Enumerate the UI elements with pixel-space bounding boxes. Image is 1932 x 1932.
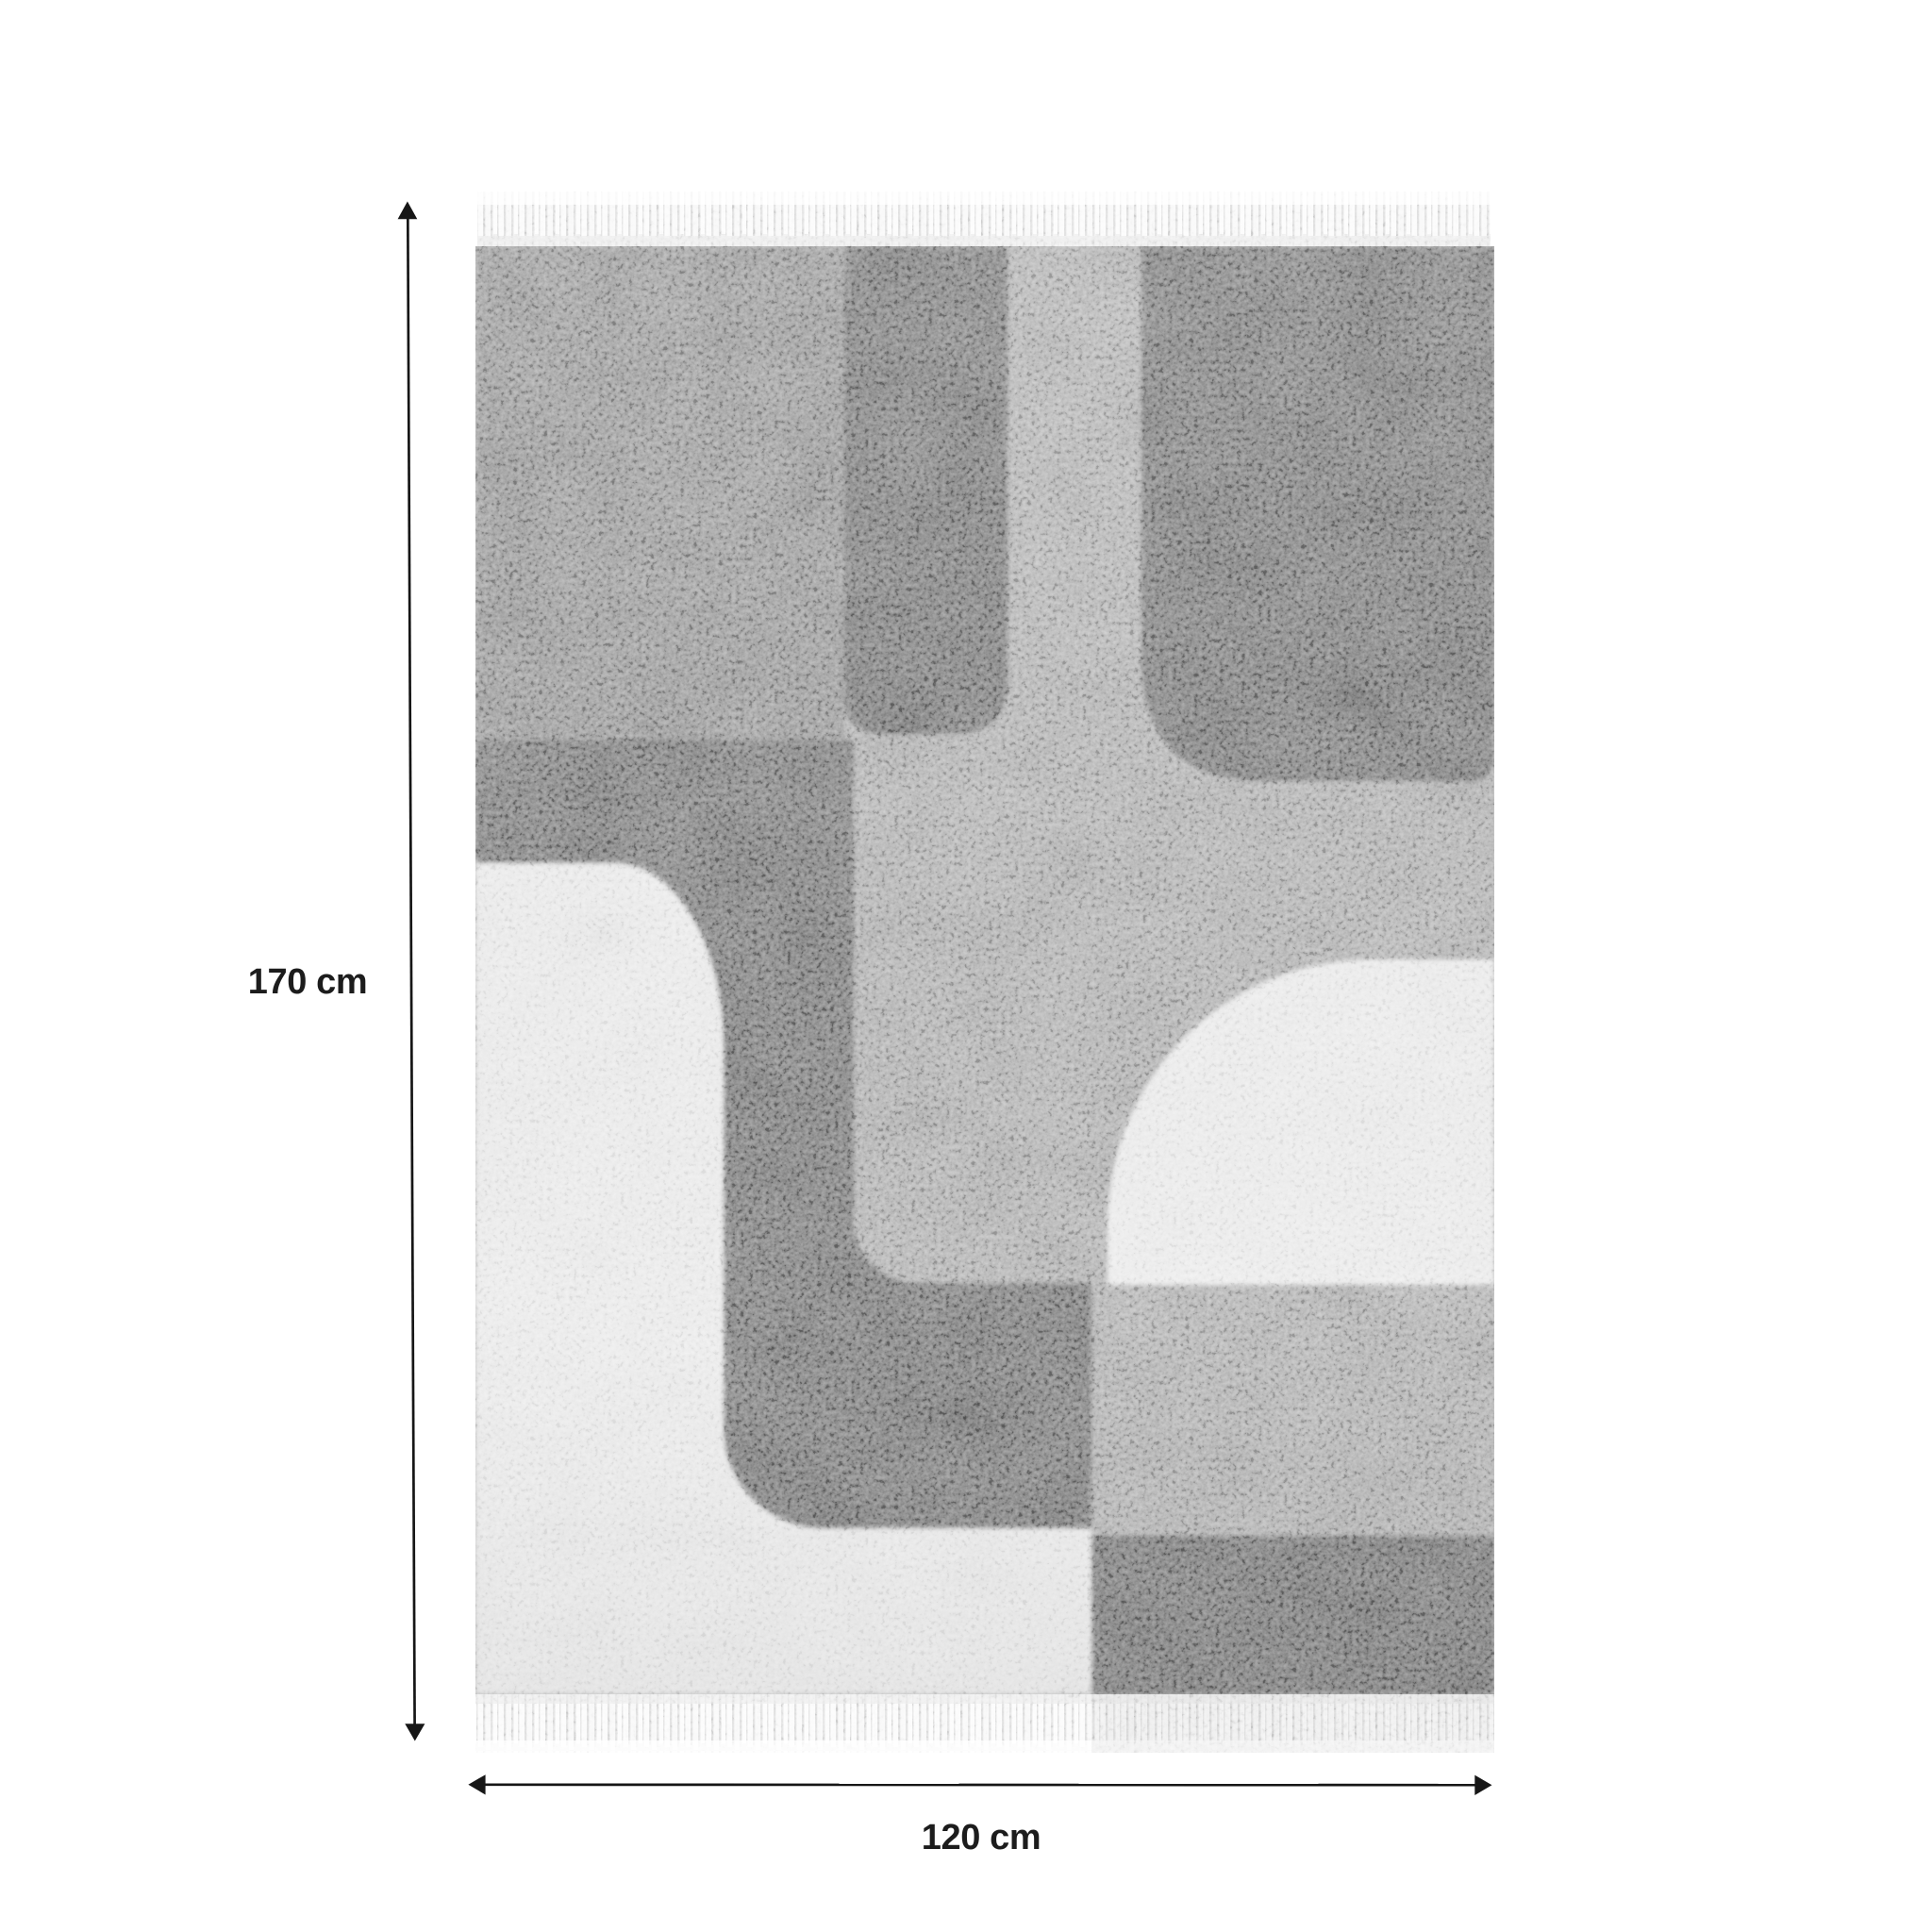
svg-text:120 cm: 120 cm — [922, 1818, 1041, 1857]
svg-text:170 cm: 170 cm — [248, 962, 367, 1002]
